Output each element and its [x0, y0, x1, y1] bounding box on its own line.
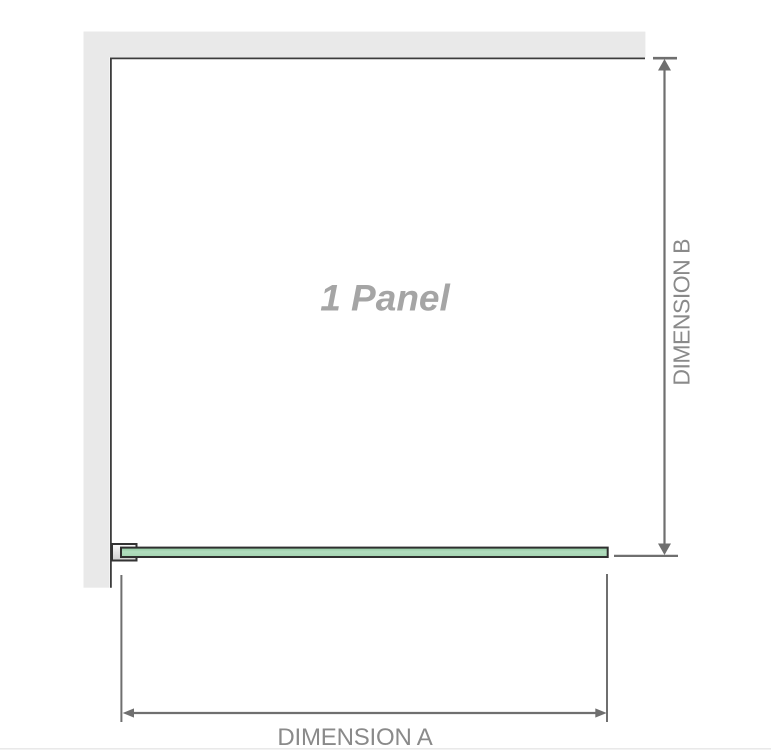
svg-text:1 Panel: 1 Panel [320, 278, 450, 319]
svg-text:DIMENSION A: DIMENSION A [277, 724, 432, 751]
svg-text:DIMENSION B: DIMENSION B [669, 239, 695, 386]
